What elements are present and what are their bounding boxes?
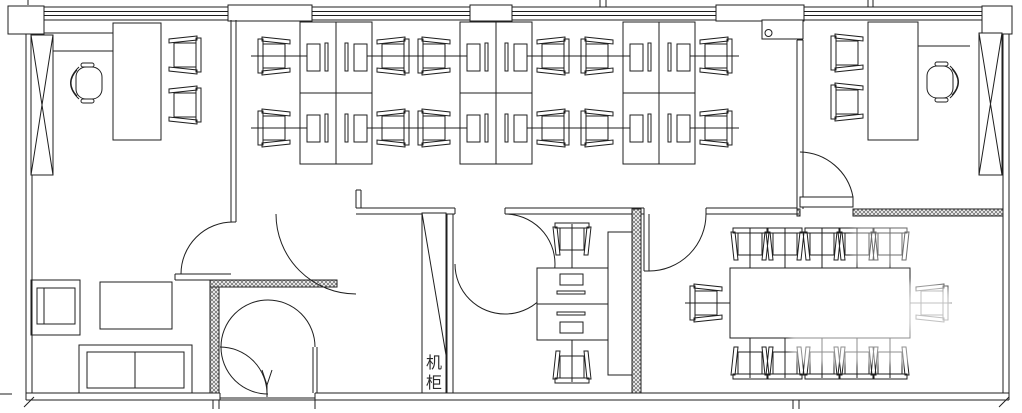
coffee-table xyxy=(100,282,172,329)
door-leaf-office-right xyxy=(800,197,853,207)
desk xyxy=(868,22,918,140)
guest-chair xyxy=(831,34,863,72)
armchair-seat xyxy=(37,288,75,324)
workstation-cluster xyxy=(574,22,739,164)
window-column-left xyxy=(31,35,53,175)
entry-door-arc-right xyxy=(221,300,315,394)
executive-chair xyxy=(71,63,103,103)
window-column-right xyxy=(979,33,1002,175)
guest-chair xyxy=(169,36,201,74)
credenza-lines xyxy=(44,33,113,51)
server-cabinet-label-char2: 柜 xyxy=(426,373,442,392)
entry-door-meeting-mark xyxy=(262,370,272,397)
executive-office-right xyxy=(762,20,970,140)
desk xyxy=(537,268,608,304)
floor-plan-drawing: 机 柜 xyxy=(0,0,1022,413)
workstation-cluster xyxy=(251,22,416,164)
open-office xyxy=(251,22,739,164)
desk xyxy=(113,23,161,140)
guest-chair xyxy=(831,83,863,121)
server-cabinet-label-char1: 机 xyxy=(426,353,442,372)
executive-office-left xyxy=(44,23,201,140)
floor-plan-page: 机 柜 xyxy=(0,0,1022,413)
side-counter xyxy=(608,232,632,375)
lounge-reception xyxy=(31,280,192,393)
entry-door-leaf xyxy=(313,347,317,393)
door-arc-conference xyxy=(649,214,706,271)
guest-chair xyxy=(169,86,201,124)
executive-chair xyxy=(927,62,959,102)
watermark xyxy=(790,224,956,364)
door-leaf-conference xyxy=(644,214,649,271)
door-arc-office-right xyxy=(800,152,853,197)
workstation-cluster xyxy=(411,22,576,164)
door-arc-office-left xyxy=(181,222,233,274)
window-glazing xyxy=(44,12,982,16)
